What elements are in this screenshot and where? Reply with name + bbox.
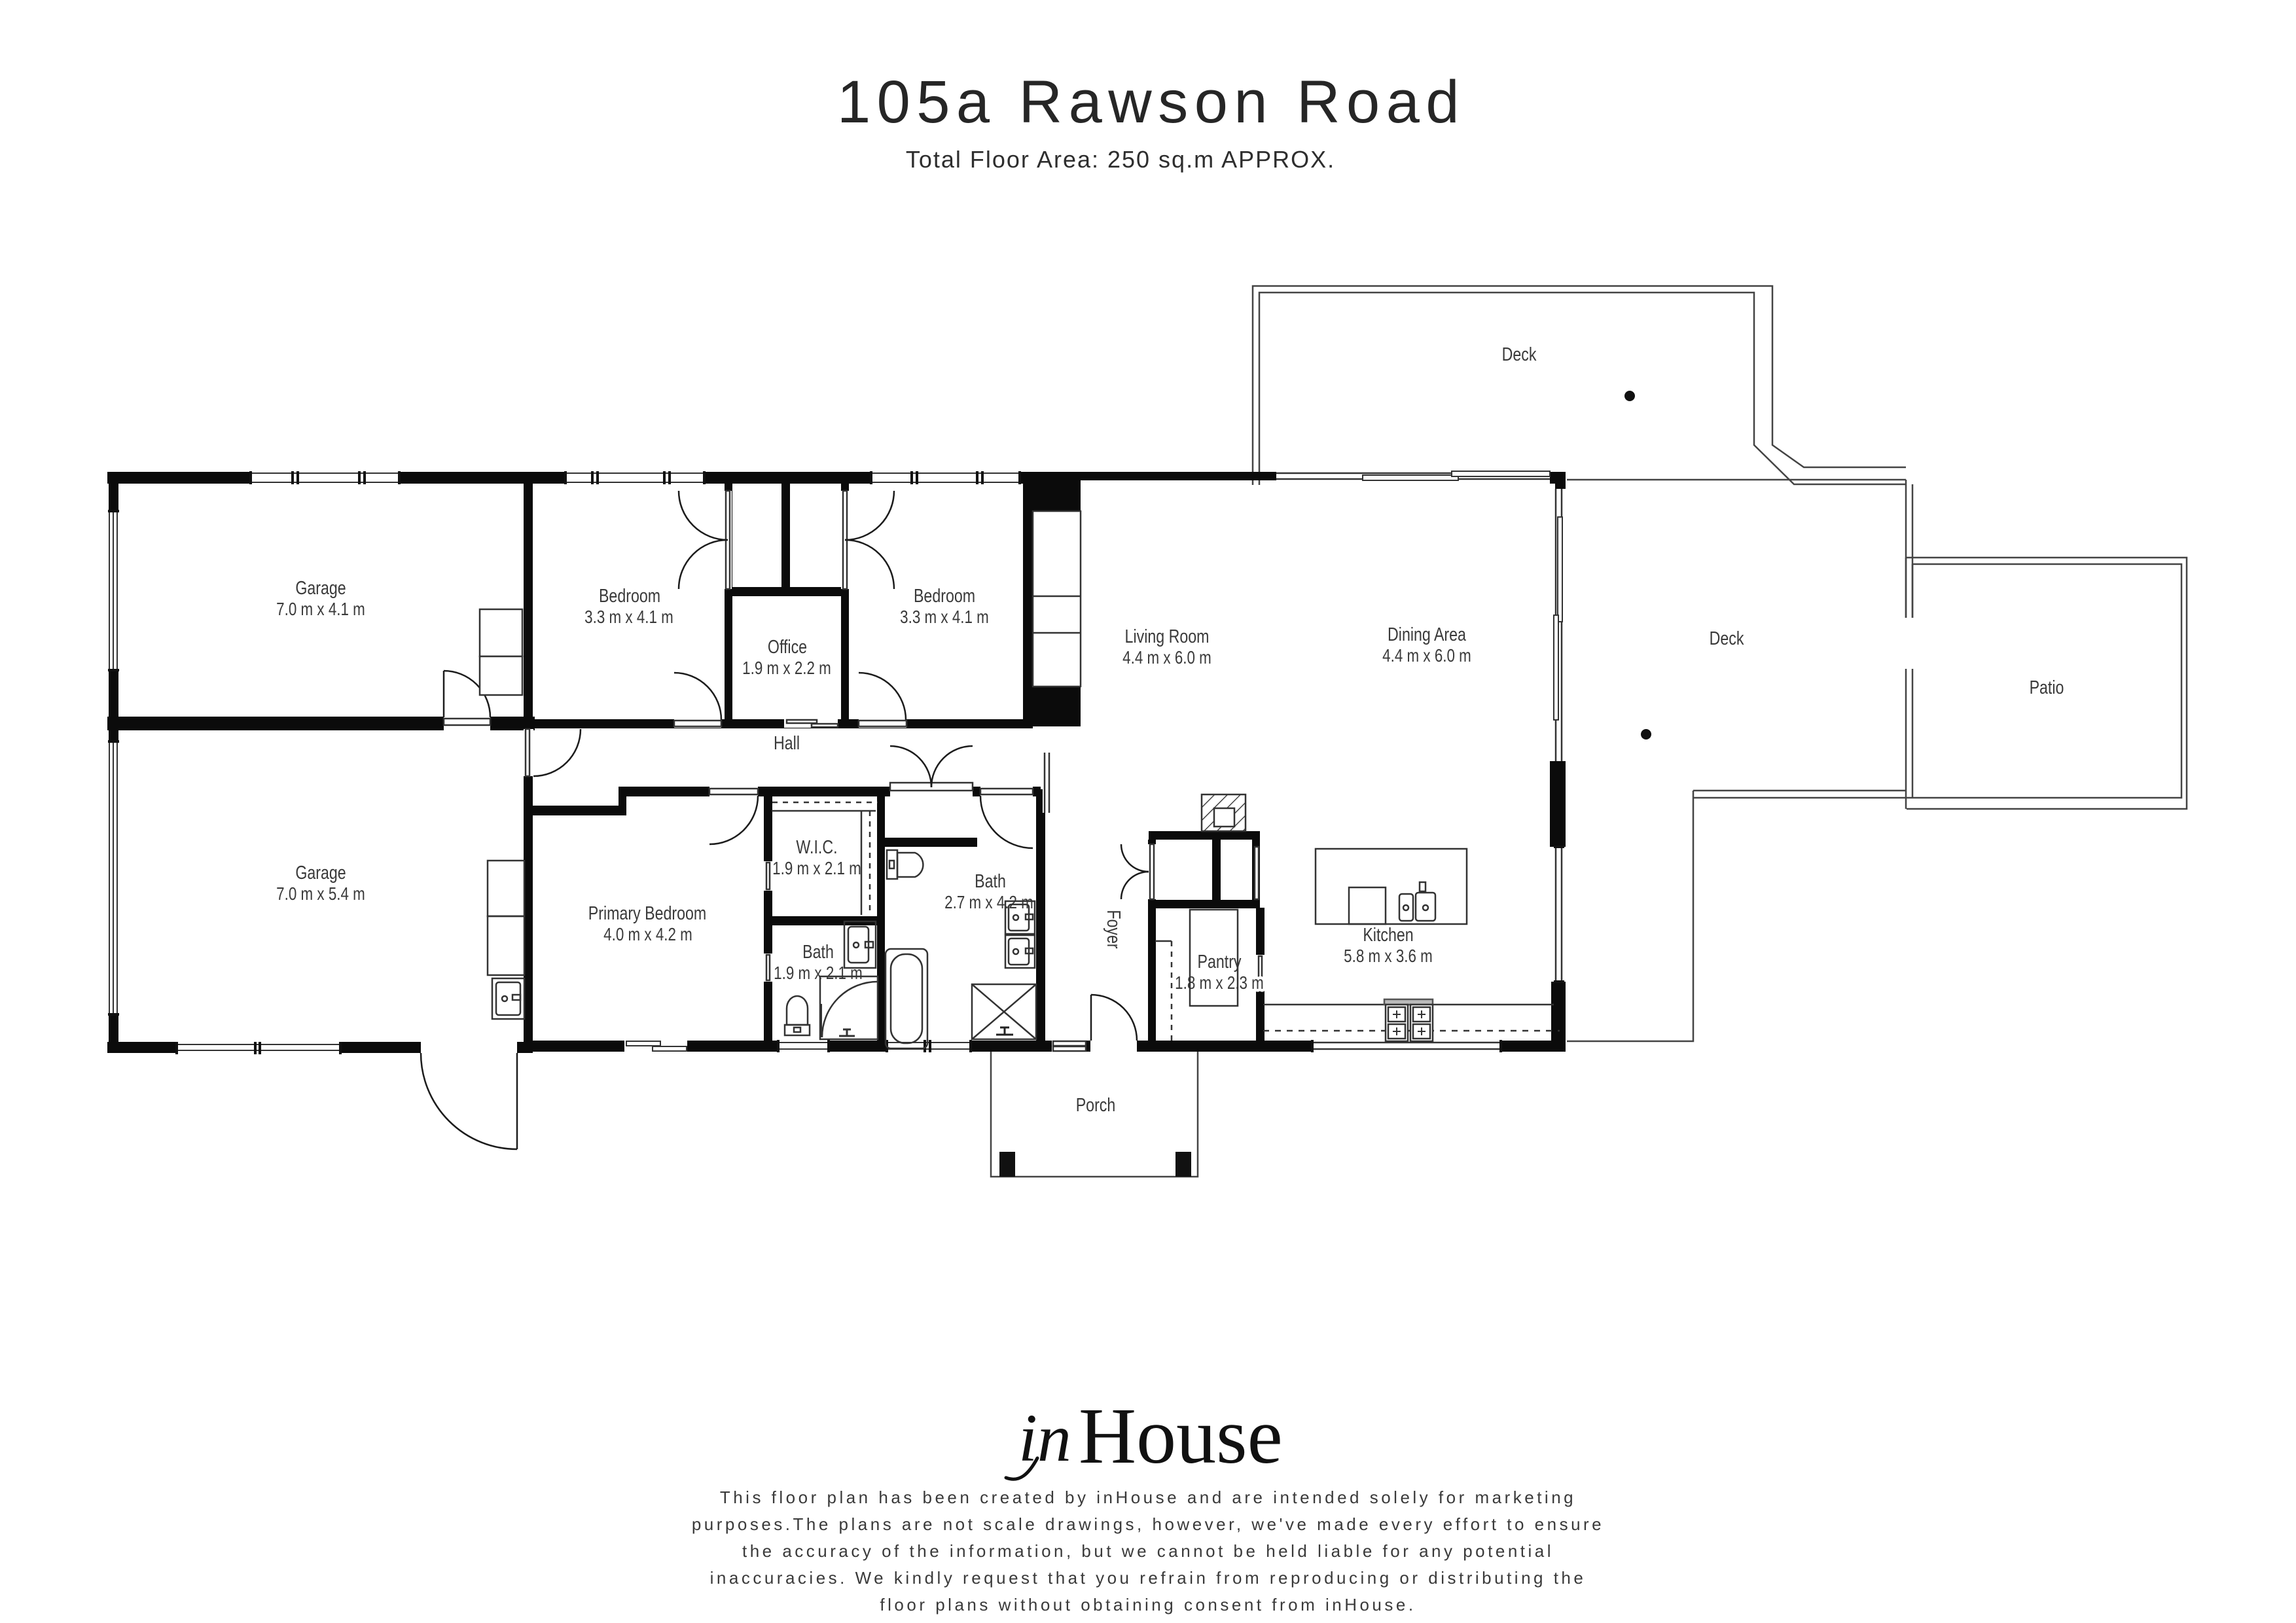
svg-text:Bedroom: Bedroom [599,584,660,606]
svg-text:4.4 m x 6.0 m: 4.4 m x 6.0 m [1122,648,1211,668]
svg-text:1.9 m x 2.1 m: 1.9 m x 2.1 m [772,859,861,879]
svg-text:3.3 m x 4.1 m: 3.3 m x 4.1 m [900,607,989,628]
svg-text:Total Floor Area: 250 sq.m APP: Total Floor Area: 250 sq.m APPROX. [906,146,1335,173]
svg-text:Living Room: Living Room [1125,625,1210,647]
svg-text:Garage: Garage [295,861,346,883]
svg-text:House: House [1079,1392,1283,1480]
svg-text:W.I.C.: W.I.C. [796,836,837,857]
svg-text:Porch: Porch [1076,1094,1116,1115]
svg-text:the accuracy of the informatio: the accuracy of the information, but we … [742,1541,1554,1561]
svg-text:Primary Bedroom: Primary Bedroom [588,902,706,923]
svg-text:purposes.The plans are not sca: purposes.The plans are not scale drawing… [692,1514,1604,1534]
svg-text:floor plans without obtaining: floor plans without obtaining consent fr… [880,1595,1416,1614]
svg-text:Hall: Hall [774,732,800,753]
svg-text:2.7 m x 4.2 m: 2.7 m x 4.2 m [944,893,1033,913]
svg-text:Foyer: Foyer [1103,910,1124,949]
svg-text:inaccuracies. We kindly reques: inaccuracies. We kindly request that you… [710,1568,1587,1588]
svg-text:1.8 m x 2.3 m: 1.8 m x 2.3 m [1175,973,1264,993]
svg-text:Bedroom: Bedroom [914,584,975,606]
svg-text:7.0 m x 4.1 m: 7.0 m x 4.1 m [276,599,365,620]
svg-text:3.3 m x 4.1 m: 3.3 m x 4.1 m [584,607,673,628]
svg-text:Kitchen: Kitchen [1363,923,1413,945]
svg-text:in: in [1018,1400,1071,1476]
svg-text:5.8 m x 3.6 m: 5.8 m x 3.6 m [1344,946,1433,967]
svg-text:1.9 m x 2.1 m: 1.9 m x 2.1 m [774,963,863,984]
svg-text:1.9 m x 2.2 m: 1.9 m x 2.2 m [742,658,831,679]
svg-text:Bath: Bath [975,870,1006,891]
svg-text:Deck: Deck [1502,343,1537,365]
svg-text:7.0 m x 5.4 m: 7.0 m x 5.4 m [276,884,365,904]
svg-text:This floor plan has been creat: This floor plan has been created by inHo… [720,1488,1576,1507]
svg-text:Dining Area: Dining Area [1388,623,1466,645]
svg-text:Office: Office [768,635,807,657]
svg-text:Deck: Deck [1710,627,1745,649]
svg-text:105a Rawson Road: 105a Rawson Road [837,69,1465,135]
svg-text:Pantry: Pantry [1197,950,1242,972]
svg-text:4.0 m x 4.2 m: 4.0 m x 4.2 m [603,925,692,945]
svg-text:Bath: Bath [802,940,834,962]
svg-text:Garage: Garage [295,577,346,598]
svg-text:4.4 m x 6.0 m: 4.4 m x 6.0 m [1382,646,1471,666]
svg-text:Patio: Patio [2030,676,2064,698]
